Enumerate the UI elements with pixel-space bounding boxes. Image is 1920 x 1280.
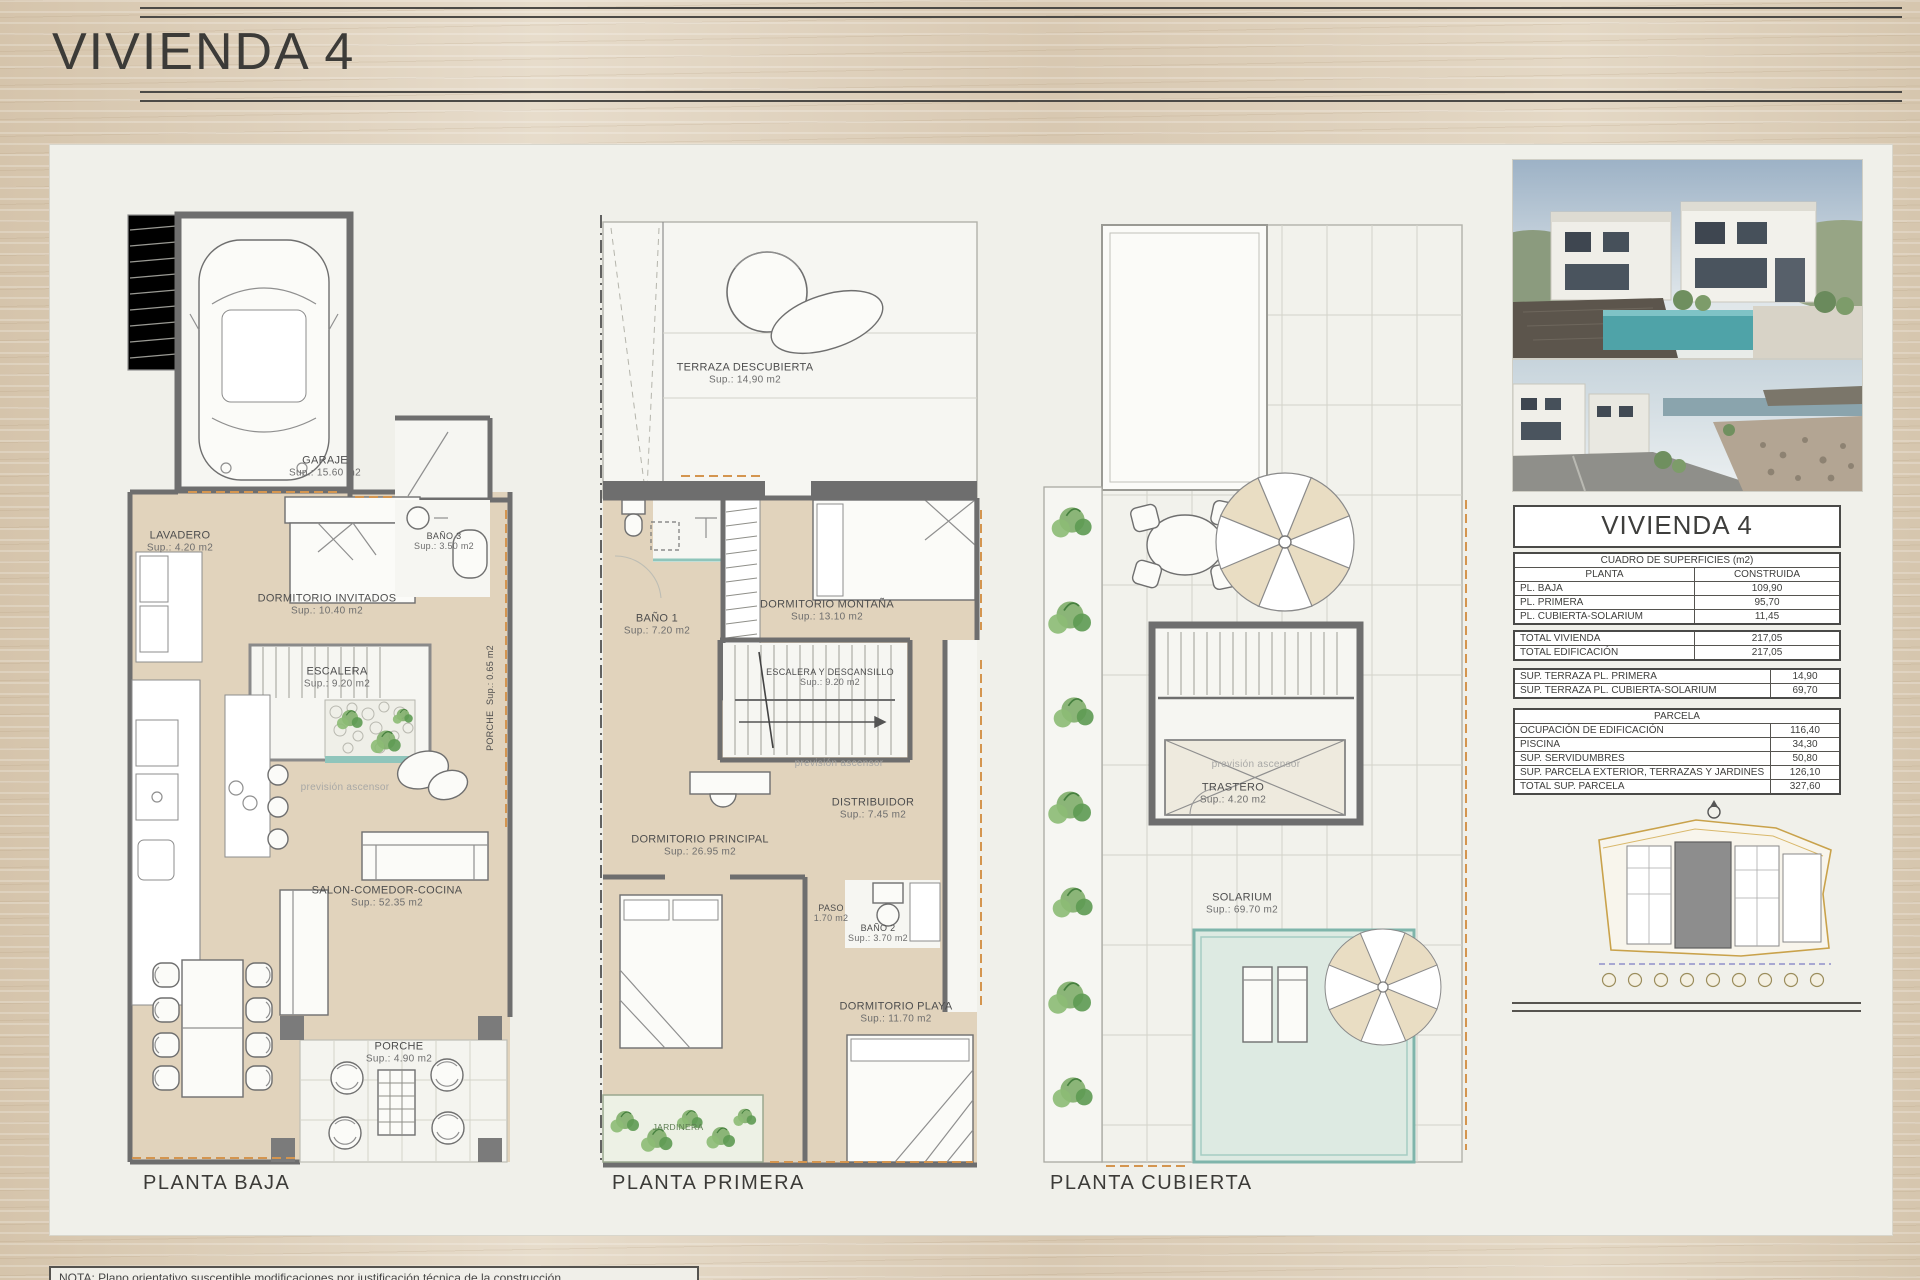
room-label-porche-trasero: PORCHESup.: 4.90 m2 <box>366 1041 432 1066</box>
room-label-dormitorio-montana: DORMITORIO MONTAÑASup.: 13.10 m2 <box>760 599 894 624</box>
col-header-construida: CONSTRUIDA <box>1694 568 1839 581</box>
title-underline-rule <box>140 91 1902 102</box>
footer-double-rule <box>1512 1002 1861 1012</box>
label-prevision-ascensor-cubierta: previsión ascensor <box>1212 759 1301 772</box>
table-row: SUP. SERVIDUMBRES50,80 <box>1515 751 1839 765</box>
room-label-terraza-descubierta: TERRAZA DESCUBIERTASup.: 14,90 m2 <box>677 362 814 387</box>
room-label-dormitorio-principal: DORMITORIO PRINCIPALSup.: 26.95 m2 <box>631 834 769 859</box>
col-header-planta: PLANTA <box>1515 568 1694 581</box>
table-row: TOTAL EDIFICACIÓN217,05 <box>1515 645 1839 659</box>
table-row: SUP. PARCELA EXTERIOR, TERRAZAS Y JARDIN… <box>1515 765 1839 779</box>
room-label-trastero: TRASTEROSup.: 4.20 m2 <box>1200 782 1266 807</box>
room-label-distribuidor: DISTRIBUIDORSup.: 7.45 m2 <box>832 797 914 822</box>
label-prevision-ascensor-primera: previsión ascensor <box>795 758 884 771</box>
floor-plan-planta-primera <box>595 200 990 1210</box>
table-row: SUP. TERRAZA PL. PRIMERA14,90 <box>1515 670 1839 683</box>
room-label-dormitorio-playa: DORMITORIO PLAYASup.: 11.70 m2 <box>840 1001 953 1026</box>
top-double-rule <box>140 7 1902 18</box>
room-label-escalera-descansillo: ESCALERA Y DESCANSILLOSup.: 9.20 m2 <box>766 667 894 687</box>
photo-exterior-pool-view <box>1512 159 1863 359</box>
table-row: PISCINA34,30 <box>1515 737 1839 751</box>
room-label-dormitorio-invitados: DORMITORIO INVITADOSSup.: 10.40 m2 <box>258 593 397 618</box>
page-title: VIVIENDA 4 <box>52 22 355 82</box>
table-row: TOTAL SUP. PARCELA327,60 <box>1515 779 1839 793</box>
table-row: SUP. TERRAZA PL. CUBIERTA-SOLARIUM69,70 <box>1515 683 1839 697</box>
surfaces-panel: VIVIENDA 4 CUADRO DE SUPERFICIES (m2) PL… <box>1513 505 1841 795</box>
room-label-bano-1: BAÑO 1Sup.: 7.20 m2 <box>624 613 690 638</box>
panel-title: VIVIENDA 4 <box>1513 505 1841 548</box>
room-label-jardinera: JARDINERA <box>653 1121 704 1134</box>
surfaces-table-main: CUADRO DE SUPERFICIES (m2) PLANTA CONSTR… <box>1513 552 1841 625</box>
room-label-bano-2: BAÑO 2Sup.: 3.70 m2 <box>848 923 908 943</box>
table-row: PL. CUBIERTA-SOLARIUM11,45 <box>1515 609 1839 623</box>
table-row: TOTAL VIVIENDA217,05 <box>1515 632 1839 645</box>
room-label-escalera: ESCALERASup.: 9.20 m2 <box>304 666 370 691</box>
floor-plan-planta-cubierta <box>1040 200 1495 1210</box>
room-label-porche-lateral: PORCHE Sup.: 0.65 m2 <box>485 645 495 751</box>
photo-coastal-street-view <box>1512 359 1863 492</box>
label-prevision-ascensor-baja: previsión ascensor <box>301 782 390 795</box>
table-subtitle: CUADRO DE SUPERFICIES (m2) <box>1515 554 1839 567</box>
caption-planta-baja: PLANTA BAJA <box>143 1172 290 1195</box>
room-label-garaje: GARAJESup.: 15.60 m2 <box>289 455 361 480</box>
surfaces-table-terraces: SUP. TERRAZA PL. PRIMERA14,90 SUP. TERRA… <box>1513 668 1841 699</box>
parcela-header: PARCELA <box>1515 710 1839 723</box>
caption-planta-primera: PLANTA PRIMERA <box>612 1172 805 1195</box>
site-plan-diagram <box>1591 798 1841 994</box>
disclaimer-note: NOTA: Plano orientativo susceptible modi… <box>49 1266 699 1280</box>
room-label-paso: PASO1.70 m2 <box>814 903 849 923</box>
surfaces-table-totals: TOTAL VIVIENDA217,05 TOTAL EDIFICACIÓN21… <box>1513 630 1841 661</box>
table-row: PL. BAJA109,90 <box>1515 581 1839 595</box>
plan-sheet-page: VIVIENDA 4 <box>0 0 1920 1280</box>
surfaces-table-parcela: PARCELA OCUPACIÓN DE EDIFICACIÓN116,40 P… <box>1513 708 1841 795</box>
room-label-bano-3: BAÑO 3Sup.: 3.50 m2 <box>414 531 474 551</box>
room-label-salon-comedor-cocina: SALON-COMEDOR-COCINASup.: 52.35 m2 <box>312 885 463 910</box>
room-label-solarium: SOLARIUMSup.: 69.70 m2 <box>1206 892 1278 917</box>
caption-planta-cubierta: PLANTA CUBIERTA <box>1050 1172 1253 1195</box>
table-row: PL. PRIMERA95,70 <box>1515 595 1839 609</box>
table-row: OCUPACIÓN DE EDIFICACIÓN116,40 <box>1515 723 1839 737</box>
room-label-lavadero: LAVADEROSup.: 4.20 m2 <box>147 530 213 555</box>
